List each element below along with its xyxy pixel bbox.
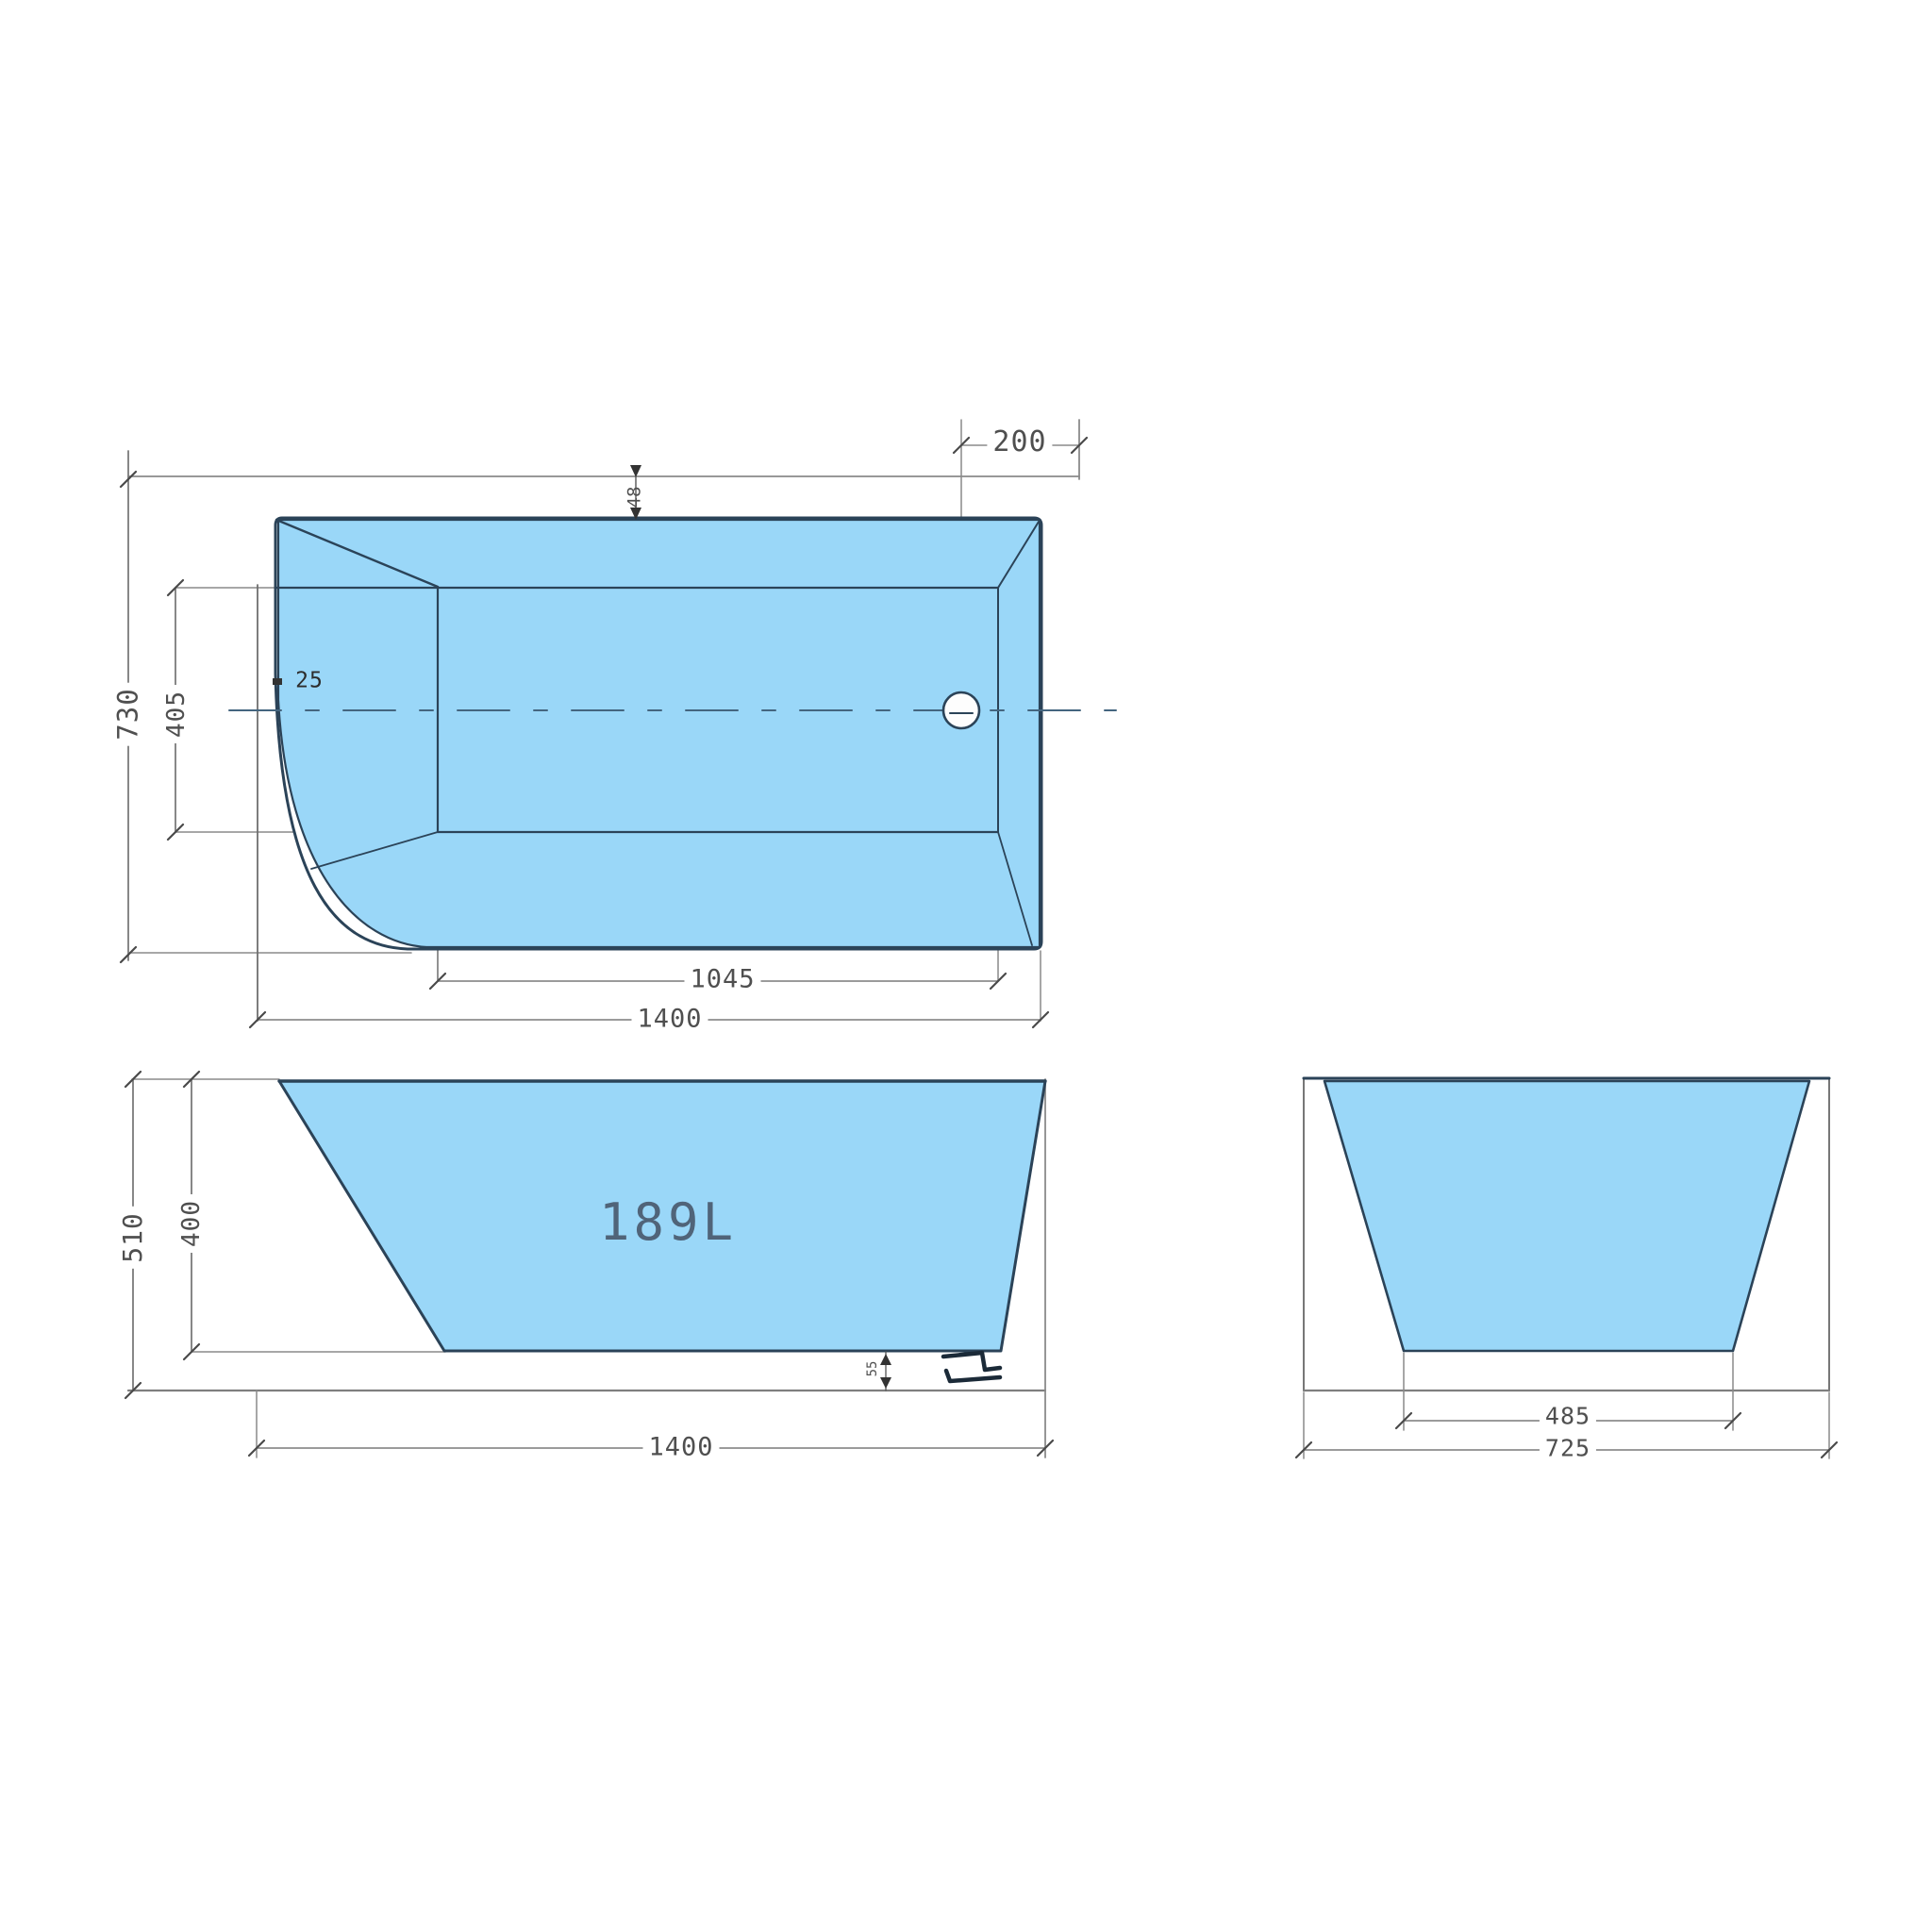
adjustable-foot-icon — [946, 1371, 1000, 1381]
volume-label: 189L — [599, 1197, 737, 1248]
dim-label-top-overall-length: 1400 — [631, 1006, 708, 1033]
dim-tick — [273, 678, 282, 685]
dim-label-front-floor-clearance: 55 — [866, 1361, 879, 1377]
technical-drawing-canvas: 200 48 730 405 25 1045 1400 510 400 189L… — [0, 0, 1932, 1932]
dim-label-front-overall-height: 510 — [119, 1207, 147, 1269]
tub-end-profile — [1324, 1081, 1809, 1351]
arrowhead — [880, 1377, 891, 1389]
dim-label-top-drain-offset: 200 — [987, 427, 1052, 458]
drain-icon — [943, 692, 979, 728]
drawing-linework — [0, 0, 1932, 1932]
dim-label-top-inner-width: 405 — [163, 685, 190, 743]
dim-label-top-rim-front: 48 — [626, 487, 644, 508]
arrowhead — [630, 465, 641, 477]
dim-label-top-overall-width: 730 — [114, 682, 143, 745]
dim-label-front-inner-depth: 400 — [178, 1194, 205, 1253]
arrowhead — [880, 1354, 891, 1365]
front-view — [125, 1072, 1053, 1457]
dim-label-side-floor-width: 485 — [1540, 1404, 1596, 1429]
dim-label-top-rim-side: 25 — [295, 671, 324, 692]
adjustable-foot-icon — [943, 1353, 1000, 1370]
dim-label-side-overall-width: 725 — [1540, 1436, 1596, 1461]
top-view — [121, 420, 1116, 1027]
dim-label-front-overall-length: 1400 — [642, 1434, 719, 1461]
tub-basin-top — [278, 520, 1040, 947]
dim-label-top-floor-length: 1045 — [684, 966, 760, 993]
